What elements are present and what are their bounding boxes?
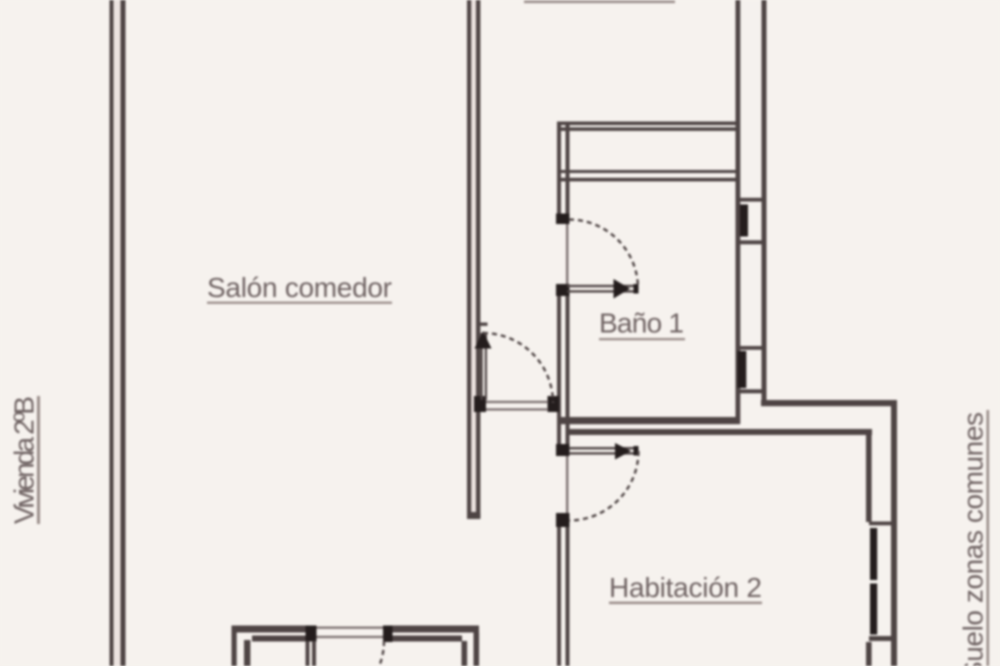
svg-text:Habitación 2: Habitación 2 xyxy=(609,572,762,603)
svg-text:Salón comedor: Salón comedor xyxy=(207,272,392,303)
svg-text:Suelo zonas comunes: Suelo zonas comunes xyxy=(958,412,989,666)
svg-text:Baño 1: Baño 1 xyxy=(599,308,684,339)
svg-text:Vivienda 2ºB: Vivienda 2ºB xyxy=(9,396,40,524)
